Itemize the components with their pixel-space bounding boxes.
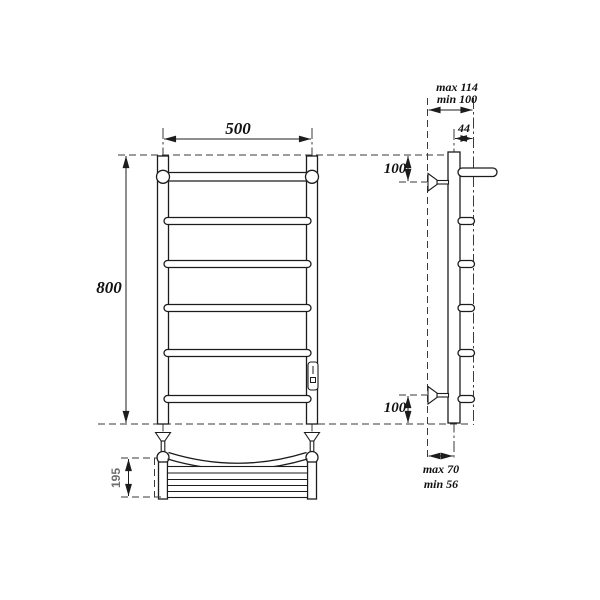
drawing-canvas: 500 800 195 max 114 min 100 44	[0, 0, 600, 600]
side-rung-stub-4	[458, 305, 475, 312]
shelf-front-rail-top	[169, 453, 307, 464]
shelf-right-end	[308, 462, 317, 499]
construction-lines	[98, 98, 474, 466]
side-rung-stub-5	[458, 350, 475, 357]
side-tube	[448, 152, 460, 423]
front-rung-3	[164, 261, 311, 268]
front-rung-5	[164, 350, 311, 357]
front-rung-2	[164, 218, 311, 225]
heater-switch-box	[308, 362, 318, 390]
dim-wall-offset-min-label: min 100	[437, 92, 477, 106]
dim-wall-offset: max 114 min 100	[429, 80, 478, 110]
dim-width: 500	[164, 119, 311, 139]
side-top-rung	[458, 168, 497, 177]
shelf-slats	[168, 467, 308, 498]
dim-top-mount: 100	[384, 156, 427, 182]
dim-height-label: 800	[96, 278, 122, 297]
towel-rail-technical-drawing: 500 800 195 max 114 min 100 44	[0, 0, 600, 600]
dim-lower-depth: max 70 min 56	[423, 456, 459, 491]
switch-button	[311, 378, 316, 383]
dim-shelf-height-label: 195	[109, 468, 123, 488]
front-rung-4	[164, 305, 311, 312]
dimensions: 500 800 195 max 114 min 100 44	[96, 80, 478, 497]
shelf-view	[156, 433, 320, 500]
top-rung-left-joint	[157, 170, 170, 183]
dim-bar-offset: 44	[455, 121, 473, 139]
shelf-left-end	[159, 462, 168, 499]
bottom-wall-bracket	[428, 387, 449, 405]
side-rung-stub-6	[458, 396, 475, 403]
side-rung-stub-2	[458, 218, 475, 225]
front-top-rung	[157, 173, 318, 182]
dim-bottom-mount: 100	[384, 395, 427, 423]
dim-lower-depth-max-label: max 70	[423, 462, 459, 476]
top-wall-bracket	[428, 174, 449, 192]
front-left-post	[158, 156, 169, 424]
front-rung-6	[164, 396, 311, 403]
shelf-right-support	[305, 433, 320, 452]
side-view	[428, 152, 497, 423]
front-view	[157, 156, 319, 424]
dim-shelf-height: 195	[109, 458, 165, 497]
side-rung-stub-3	[458, 261, 475, 268]
dim-lower-depth-min-label: min 56	[424, 477, 458, 491]
shelf-left-support	[156, 433, 171, 452]
top-rung-right-joint	[306, 170, 319, 183]
dim-bar-offset-label: 44	[457, 121, 470, 135]
dim-width-label: 500	[225, 119, 251, 138]
dim-height: 800	[96, 156, 126, 423]
dim-bottom-mount-label: 100	[384, 400, 407, 416]
dim-top-mount-label: 100	[384, 161, 407, 177]
